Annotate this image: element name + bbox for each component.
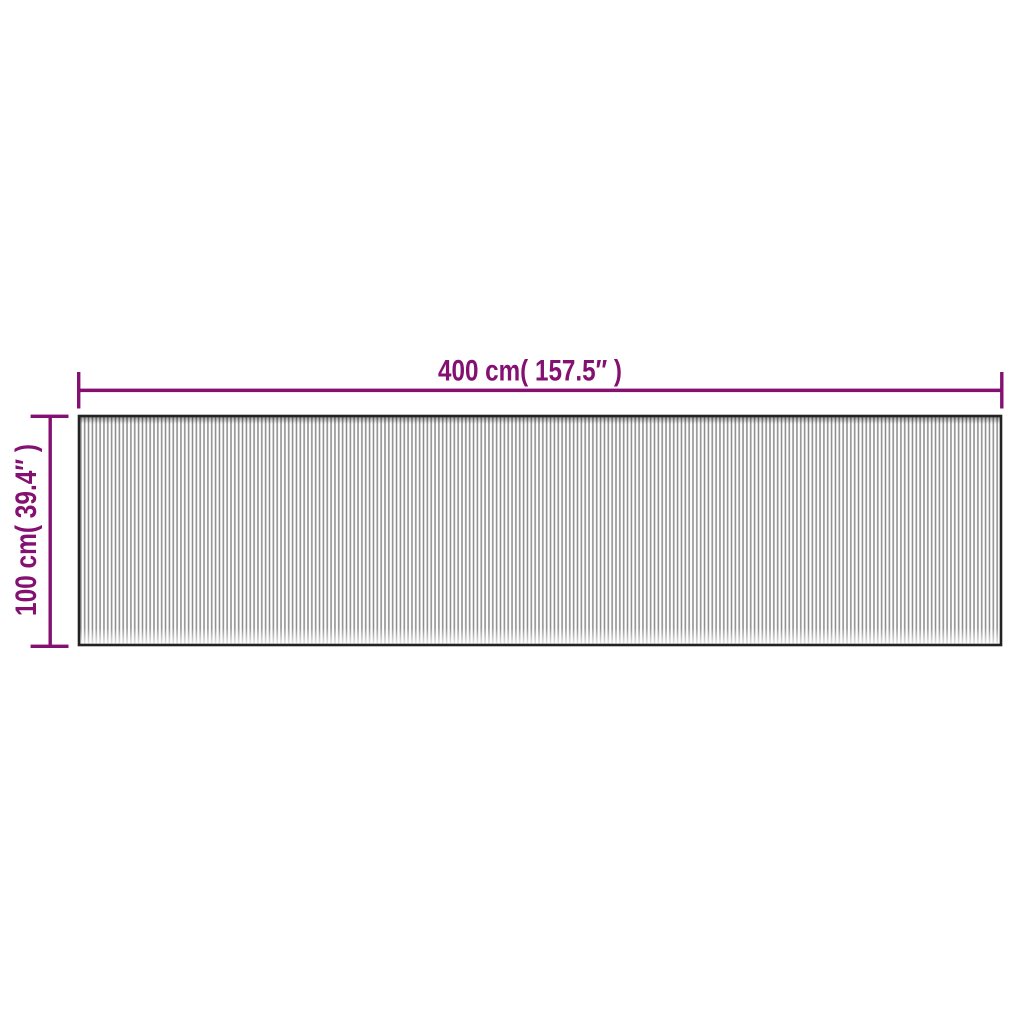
svg-text:400 cm( 157.5″ ): 400 cm( 157.5″ ) <box>438 355 622 388</box>
svg-text:100 cm( 39.4″ ): 100 cm( 39.4″ ) <box>10 444 43 616</box>
